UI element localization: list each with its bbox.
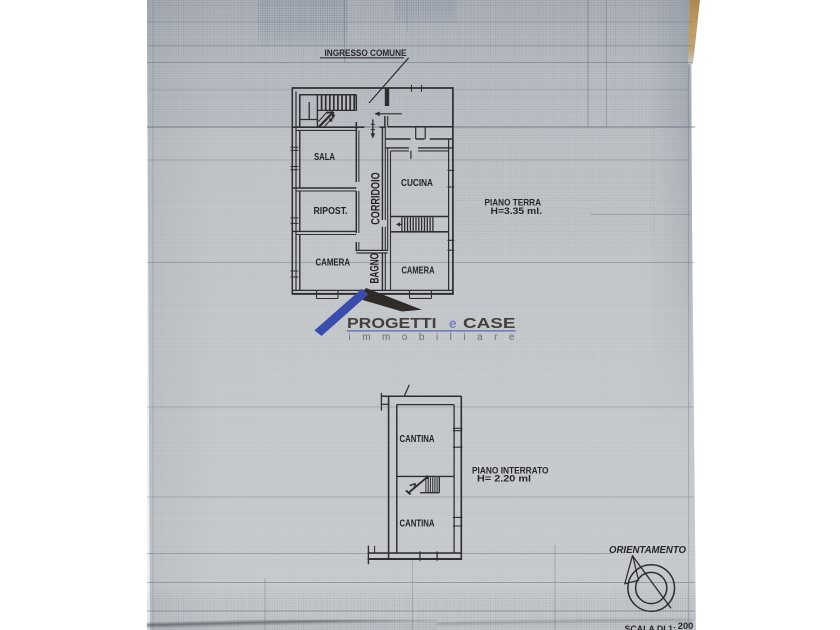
- svg-text:CANTINA: CANTINA: [400, 434, 435, 445]
- svg-text:SCALA DI 1:: SCALA DI 1:: [625, 624, 677, 630]
- svg-text:ORIENTAMENTO: ORIENTAMENTO: [609, 545, 686, 556]
- svg-text:e: e: [449, 316, 457, 331]
- svg-text:CANTINA: CANTINA: [400, 519, 435, 530]
- svg-text:SALA: SALA: [314, 152, 335, 163]
- svg-text:CAMERA: CAMERA: [402, 266, 435, 277]
- svg-text:RIPOST.: RIPOST.: [314, 205, 348, 217]
- svg-text:INGRESSO COMUNE: INGRESSO COMUNE: [325, 48, 407, 58]
- svg-text:H= 2.20 ml: H= 2.20 ml: [477, 473, 531, 484]
- svg-text:CASE: CASE: [463, 316, 516, 332]
- svg-text:PROGETTI: PROGETTI: [347, 316, 437, 332]
- svg-text:BAGNO: BAGNO: [367, 253, 381, 284]
- svg-text:H=3.35 ml.: H=3.35 ml.: [491, 206, 543, 216]
- svg-text:CAMERA: CAMERA: [316, 256, 351, 268]
- svg-text:CORRIDOIO: CORRIDOIO: [368, 172, 382, 225]
- svg-text:CUCINA: CUCINA: [401, 178, 434, 189]
- svg-text:200: 200: [678, 621, 694, 630]
